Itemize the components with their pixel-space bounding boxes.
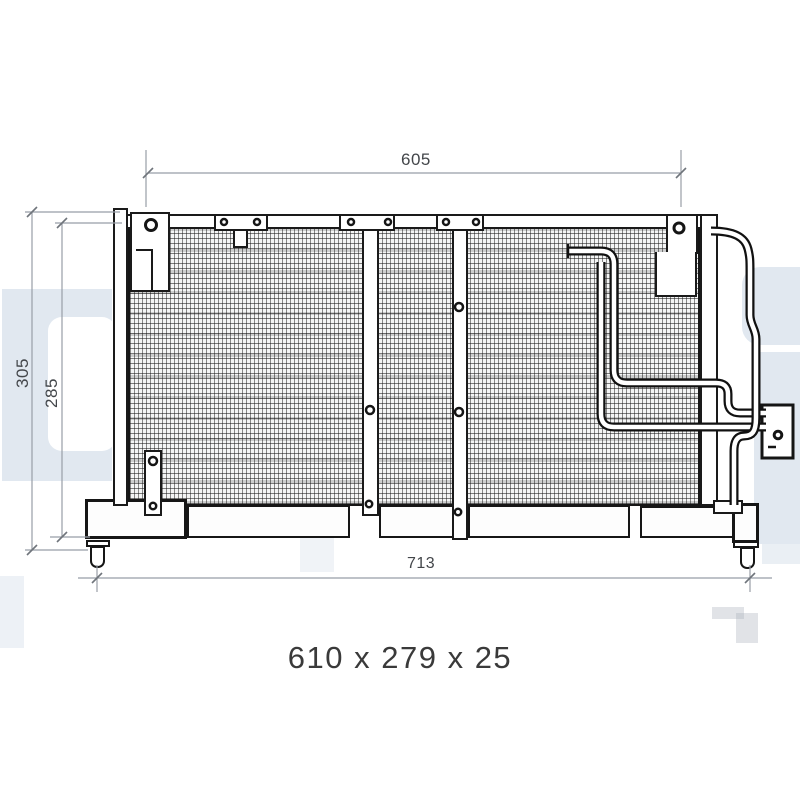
bolt-hole [254,219,260,225]
fitting-hole [774,431,782,439]
strip-node [455,303,463,311]
bracket-hole [146,220,157,231]
bracket-hole [150,503,156,509]
dim-label-overall-height: 305 [13,355,33,391]
bolt-hole [385,219,391,225]
dim-label-top-width: 605 [401,150,431,170]
strip-node [455,408,463,416]
strip-foot-hole [366,501,372,507]
bracket-hole [674,223,684,233]
dim-label-core-height: 285 [42,375,62,411]
bolt-hole [443,219,449,225]
dim-label-bottom-width: 713 [407,555,435,573]
size-caption: 610 x 279 x 25 [230,640,570,676]
pipes-and-dimensions-layer [0,0,800,800]
bolt-hole [221,219,227,225]
strip-foot-hole [455,509,461,515]
bracket-hole [149,457,157,465]
strip-node [366,406,374,414]
bolt-hole [348,219,354,225]
bolt-hole [473,219,479,225]
